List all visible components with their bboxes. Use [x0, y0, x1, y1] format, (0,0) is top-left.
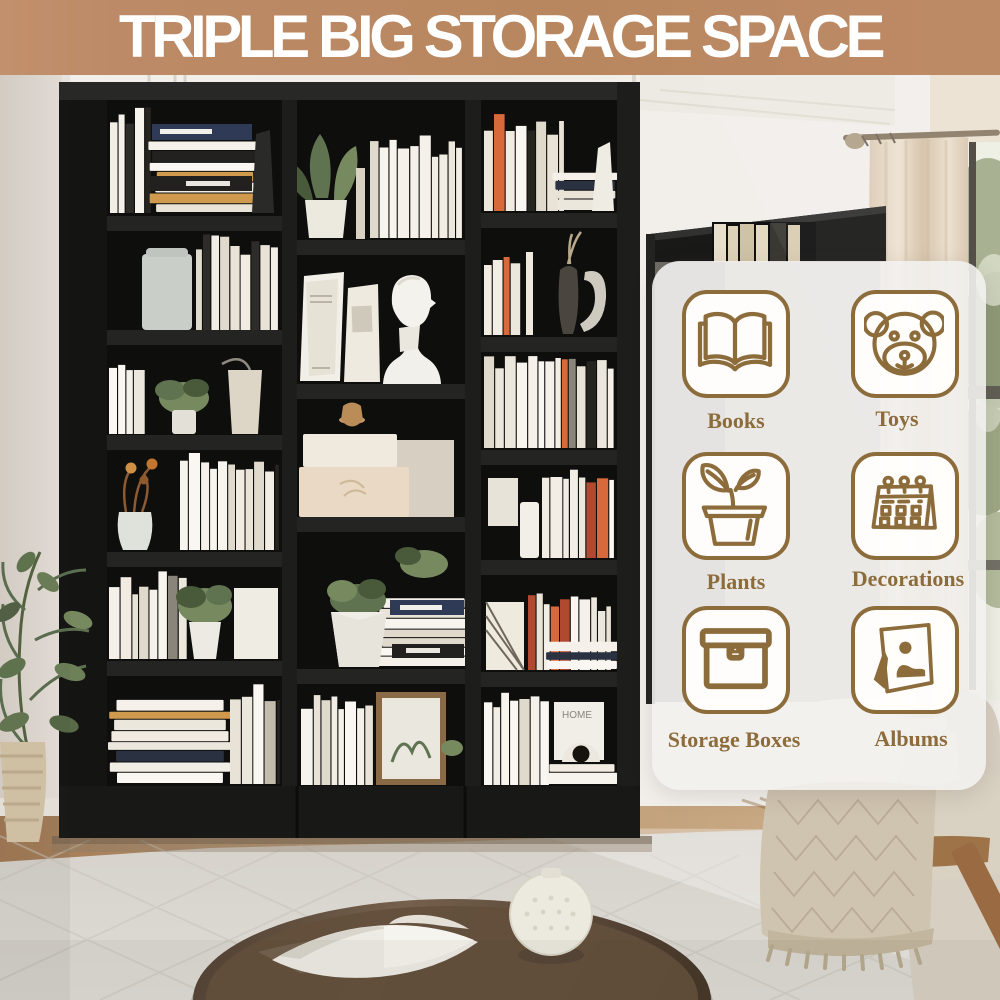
svg-text:HOME: HOME [562, 710, 592, 721]
